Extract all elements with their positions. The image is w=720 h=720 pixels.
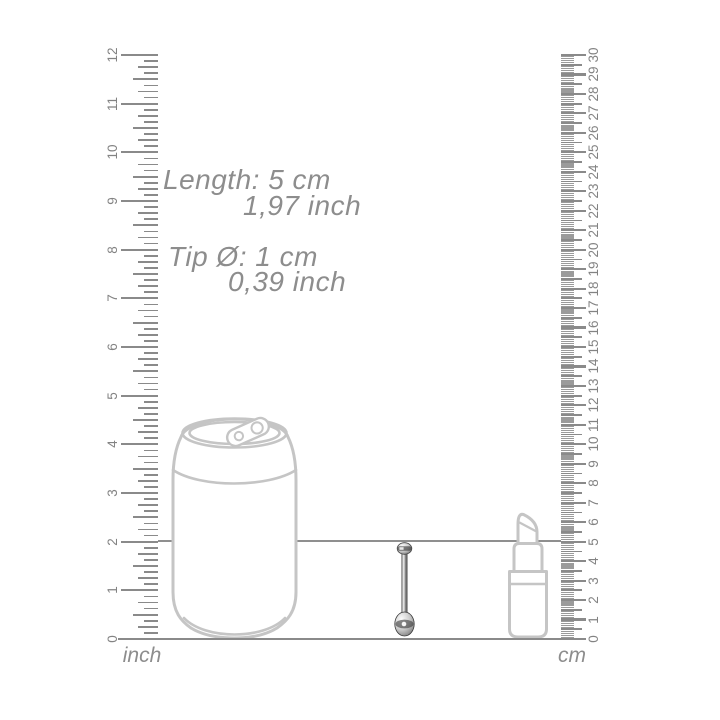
ruler-tick [561, 82, 574, 83]
ruler-tick [561, 496, 574, 497]
ruler-tick [561, 545, 574, 546]
ruler-tick [561, 117, 574, 118]
ruler-tick [561, 195, 574, 196]
ruler-tick [561, 222, 574, 223]
ruler-tick [561, 245, 574, 246]
ruler-tick [561, 202, 574, 203]
ruler-tick [561, 570, 582, 572]
ruler-tick [561, 158, 574, 159]
ruler-tick [561, 521, 586, 523]
ruler-tick [561, 190, 586, 192]
ruler-tick [561, 589, 582, 591]
ruler-tick [561, 177, 574, 178]
ruler-tick [561, 296, 574, 297]
ruler-tick [561, 171, 586, 173]
ruler-tick [561, 237, 574, 238]
ruler-tick [138, 237, 158, 239]
ruler-tick [133, 273, 158, 275]
ruler-tick [561, 208, 574, 209]
baseline-zero-line [118, 638, 586, 640]
ruler-tick [138, 115, 158, 117]
ruler-tick [561, 212, 574, 213]
ruler-tick [144, 182, 158, 184]
ruler-tick [561, 206, 574, 207]
ruler-tick [144, 450, 158, 452]
ruler-tick [561, 617, 574, 618]
ruler-tick [561, 348, 574, 349]
ruler-tick [144, 583, 158, 585]
ruler-tick [561, 336, 582, 338]
ruler-tick [121, 541, 158, 543]
ruler-tick [138, 334, 158, 336]
ruler-tick [144, 413, 158, 415]
ruler-tick [561, 539, 574, 540]
ruler-number: 4 [105, 424, 121, 464]
ruler-tick [138, 431, 158, 433]
ruler-tick [561, 261, 574, 262]
ruler-tick [561, 163, 574, 164]
ruler-tick [561, 531, 582, 533]
ruler-tick [561, 341, 574, 342]
ruler-tick [561, 319, 574, 320]
ruler-tick [144, 352, 158, 354]
ruler-tick [561, 443, 586, 445]
ruler-tick [561, 304, 574, 305]
ruler-tick [144, 486, 158, 488]
ruler-tick [561, 389, 574, 390]
ruler-tick [561, 86, 574, 87]
ruler-tick [561, 498, 574, 499]
ruler-tick [561, 401, 574, 402]
ruler-tick [561, 520, 574, 521]
ruler-tick [561, 313, 574, 314]
ruler-tick [561, 125, 574, 126]
ruler-tick [561, 243, 574, 244]
ruler-tick [561, 271, 574, 272]
ruler-tick [561, 325, 574, 326]
ruler-tick [133, 322, 158, 324]
ruler-tick [561, 414, 582, 416]
ruler-tick [561, 598, 574, 599]
ruler-tick [138, 480, 158, 482]
ruler-tick [138, 553, 158, 555]
ruler-tick [561, 420, 574, 421]
ruler-tick [561, 101, 574, 102]
ruler-tick [561, 551, 582, 553]
ruler-tick [561, 154, 574, 155]
ruler-tick [561, 228, 574, 229]
ruler-tick [561, 549, 574, 550]
ruler-tick [561, 428, 574, 429]
ruler-tick [561, 56, 574, 57]
ruler-number: 5 [105, 376, 121, 416]
ruler-tick [561, 160, 574, 161]
ruler-tick [561, 193, 574, 194]
ruler-number: 10 [105, 132, 121, 172]
ruler-tick [561, 274, 574, 275]
ruler-tick [144, 510, 158, 512]
ruler-tick [144, 170, 158, 172]
ruler-tick [561, 354, 574, 355]
ruler-tick [561, 130, 574, 131]
ruler-tick [561, 309, 574, 310]
ruler-tick [561, 360, 574, 361]
ruler-tick [561, 352, 574, 353]
ruler-tick [561, 151, 586, 153]
ruler-tick [561, 239, 582, 241]
ruler-tick [561, 146, 574, 147]
ruler-tick [561, 623, 574, 624]
ruler-tick [144, 133, 158, 135]
ruler-tick [561, 475, 574, 476]
ruler-tick [561, 473, 582, 475]
ruler-tick [561, 185, 574, 186]
ruler-tick [561, 527, 574, 528]
ruler-tick [138, 407, 158, 409]
ruler-tick [561, 326, 586, 328]
ruler-tick [144, 158, 158, 160]
ruler-tick [561, 255, 574, 256]
ruler-tick [561, 138, 574, 139]
ruler-tick [561, 122, 582, 124]
ruler-tick [561, 529, 574, 530]
ruler-tick [144, 377, 158, 379]
ruler-tick [561, 286, 574, 287]
ruler-tick [561, 563, 574, 564]
ruler-tick [561, 543, 574, 544]
ruler-tick [561, 391, 574, 392]
ruler-tick [561, 91, 574, 92]
ruler-tick [561, 625, 574, 626]
ruler-tick [561, 83, 582, 85]
ruler-tick [561, 399, 574, 400]
ruler-tick [561, 524, 574, 525]
ruler-tick [561, 297, 582, 299]
ruler-tick [561, 109, 574, 110]
ruler-tick [561, 508, 574, 509]
ruler-tick [121, 297, 158, 299]
ruler-tick [561, 343, 574, 344]
ruler-tick [561, 628, 582, 630]
ruler-tick [561, 568, 574, 569]
ruler-tick [561, 424, 586, 426]
ruler-tick [561, 247, 574, 248]
ruler-number: 1 [105, 570, 121, 610]
ruler-tick [561, 609, 582, 611]
ruler-tick [561, 461, 574, 462]
ruler-tick [144, 389, 158, 391]
ruler-tick [138, 383, 158, 385]
ruler-tick [561, 479, 574, 480]
ruler-tick [561, 463, 586, 465]
ruler-tick [561, 187, 574, 188]
piercing-barbell-product [395, 543, 414, 636]
ruler-tick [144, 291, 158, 293]
ruler-tick [561, 467, 574, 468]
ruler-tick [561, 372, 574, 373]
ruler-tick [561, 148, 574, 149]
ruler-tick [561, 378, 574, 379]
ruler-tick [561, 204, 574, 205]
ruler-tick [561, 504, 574, 505]
ruler-tick [561, 512, 582, 514]
ruler-tick [144, 571, 158, 573]
ruler-tick [561, 321, 574, 322]
ruler-tick [561, 140, 574, 141]
ruler-tick [561, 300, 574, 301]
ruler-tick [561, 492, 582, 494]
ruler-tick [561, 364, 574, 365]
ruler-tick [561, 307, 586, 309]
ruler-tick [144, 60, 158, 62]
ruler-tick [133, 419, 158, 421]
ruler-tick [561, 150, 574, 151]
ruler-tick [561, 315, 574, 316]
ruler-tick [561, 72, 574, 73]
ruler-tick [133, 468, 158, 470]
ruler-tick [121, 151, 158, 153]
ruler-tick [561, 218, 574, 219]
ruler-tick [144, 145, 158, 147]
ruler-tick [561, 268, 586, 270]
ruler-tick [561, 189, 574, 190]
ruler-tick [144, 267, 158, 269]
ruler-tick [561, 294, 574, 295]
ruler-tick [561, 251, 574, 252]
ruler-tick [561, 136, 574, 137]
ruler-tick [561, 586, 574, 587]
ruler-tick [561, 576, 574, 577]
ruler-tick [561, 448, 574, 449]
ruler-tick [561, 603, 574, 604]
ruler-tick [561, 615, 574, 616]
ruler-tick [561, 257, 574, 258]
ruler-tick [561, 477, 574, 478]
ruler-tick [138, 529, 158, 531]
ruler-tick [144, 243, 158, 245]
ruler-tick [561, 526, 574, 527]
ruler-tick [561, 506, 574, 507]
ruler-tick [133, 614, 158, 616]
ruler-tick [144, 340, 158, 342]
ruler-tick [561, 317, 582, 319]
ruler-tick [561, 453, 582, 455]
ruler-tick [561, 329, 574, 330]
ruler-tick [561, 455, 574, 456]
ruler-tick [561, 356, 582, 358]
ruler-tick [561, 438, 574, 439]
ruler-tick [144, 316, 158, 318]
ruler-tick [561, 169, 574, 170]
ruler-tick [561, 272, 574, 273]
inch-unit-label: inch [97, 644, 187, 668]
ruler-tick [133, 516, 158, 518]
ruler-tick [561, 220, 582, 222]
ruler-tick [144, 401, 158, 403]
ruler-tick [561, 64, 582, 66]
ruler-tick [561, 156, 574, 157]
ruler-tick [144, 608, 158, 610]
ruler-tick [561, 210, 586, 212]
ruler-tick [561, 197, 574, 198]
ruler-tick [561, 553, 574, 554]
ruler-tick [121, 492, 158, 494]
ruler-tick [138, 261, 158, 263]
ruler-tick [561, 613, 574, 614]
ruler-tick [561, 121, 574, 122]
ruler-tick [561, 413, 574, 414]
ruler-tick [144, 231, 158, 233]
ruler-tick [561, 537, 574, 538]
ruler-tick [561, 618, 586, 620]
ruler-tick [561, 288, 586, 290]
ruler-tick [561, 605, 574, 606]
ruler-tick [144, 85, 158, 87]
ruler-tick [138, 504, 158, 506]
ruler-tick [144, 218, 158, 220]
ruler-tick [561, 611, 574, 612]
ruler-tick [561, 105, 574, 106]
lipstick-drawing [510, 514, 547, 637]
ruler-tick [561, 95, 574, 96]
ruler-tick [561, 89, 574, 90]
ruler-number: 12 [105, 35, 121, 75]
ruler-tick [561, 631, 574, 632]
ruler-tick [561, 442, 574, 443]
ruler-tick [561, 365, 586, 367]
ruler-tick [561, 381, 574, 382]
ruler-tick [561, 173, 574, 174]
ruler-tick [138, 66, 158, 68]
ruler-tick [561, 370, 574, 371]
ruler-tick [561, 374, 574, 375]
ruler-tick [561, 175, 574, 176]
ruler-number: 8 [105, 230, 121, 270]
ruler-tick [138, 188, 158, 190]
ruler-tick [133, 78, 158, 80]
ruler-tick [138, 456, 158, 458]
ruler-tick [561, 216, 574, 217]
ruler-tick [561, 241, 574, 242]
ruler-tick [561, 432, 574, 433]
ruler-tick [121, 638, 158, 640]
ruler-tick [561, 607, 574, 608]
ruler-tick [561, 179, 574, 180]
ruler-tick [561, 226, 574, 227]
ruler-tick [144, 474, 158, 476]
ruler-tick [561, 362, 574, 363]
ruler-tick [561, 142, 582, 144]
ruler-tick [561, 132, 586, 134]
ruler-number: 6 [105, 327, 121, 367]
ruler-tick [561, 516, 574, 517]
ruler-tick [561, 450, 574, 451]
ruler-tick [138, 310, 158, 312]
ruler-tick [561, 417, 574, 418]
ruler-tick [144, 206, 158, 208]
ruler-tick [561, 446, 574, 447]
ruler-tick [561, 411, 574, 412]
ruler-tick [121, 589, 158, 591]
ruler-tick [138, 91, 158, 93]
ruler-tick [561, 387, 574, 388]
ruler-tick [561, 627, 574, 628]
ruler-tick [561, 93, 586, 95]
ruler-tick [144, 328, 158, 330]
ruler-tick [138, 212, 158, 214]
ruler-tick [133, 565, 158, 567]
ruler-tick [144, 194, 158, 196]
ruler-tick [561, 403, 574, 404]
ruler-tick [144, 620, 158, 622]
ruler-tick [561, 331, 574, 332]
ruler-tick [561, 253, 574, 254]
ruler-tick [561, 111, 574, 112]
ruler-tick [561, 471, 574, 472]
ruler-tick [561, 97, 574, 98]
ruler-number: 2 [105, 522, 121, 562]
ruler-tick [561, 282, 574, 283]
ruler-tick [121, 395, 158, 397]
ruler-tick [561, 485, 574, 486]
ruler-tick [121, 443, 158, 445]
ruler-tick [561, 259, 582, 261]
ruler-tick [144, 109, 158, 111]
ruler-tick [138, 164, 158, 166]
ruler-tick [561, 404, 586, 406]
ruler-tick [144, 535, 158, 537]
ruler-tick [138, 577, 158, 579]
ruler-tick [561, 500, 574, 501]
ruler-tick [561, 494, 574, 495]
measurement-diagram: Length: 5 cm 1,97 inch Tip Ø: 1 cm 0,39 … [0, 0, 720, 720]
ruler-tick [144, 279, 158, 281]
ruler-tick [561, 99, 574, 100]
ruler-tick [561, 80, 574, 81]
ruler-tick [561, 621, 574, 622]
ruler-tick [138, 358, 158, 360]
ruler-tick [561, 514, 574, 515]
soda-can-drawing [173, 415, 296, 638]
ruler-tick [561, 409, 574, 410]
ruler-tick [561, 358, 574, 359]
ruler-tick [561, 580, 586, 582]
ruler-tick [144, 632, 158, 634]
ruler-tick [561, 426, 574, 427]
ruler-number: 7 [105, 278, 121, 318]
ruler-tick [144, 498, 158, 500]
ruler-tick [561, 66, 574, 67]
ruler-tick [561, 599, 586, 601]
ruler-tick [561, 584, 574, 585]
ruler-tick [144, 72, 158, 74]
ruler-tick [144, 364, 158, 366]
ruler-tick [138, 602, 158, 604]
ruler-tick [561, 482, 586, 484]
ruler-number: 11 [105, 84, 121, 124]
ruler-tick [561, 267, 574, 268]
ruler-tick [138, 285, 158, 287]
ruler-tick [561, 183, 574, 184]
ruler-tick [561, 167, 574, 168]
ruler-tick [121, 200, 158, 202]
ruler-tick [561, 229, 586, 231]
ruler-tick [561, 58, 574, 59]
ruler-number: 3 [105, 473, 121, 513]
ruler-tick [561, 115, 574, 116]
ruler-tick [561, 489, 574, 490]
ruler-tick [561, 395, 582, 397]
